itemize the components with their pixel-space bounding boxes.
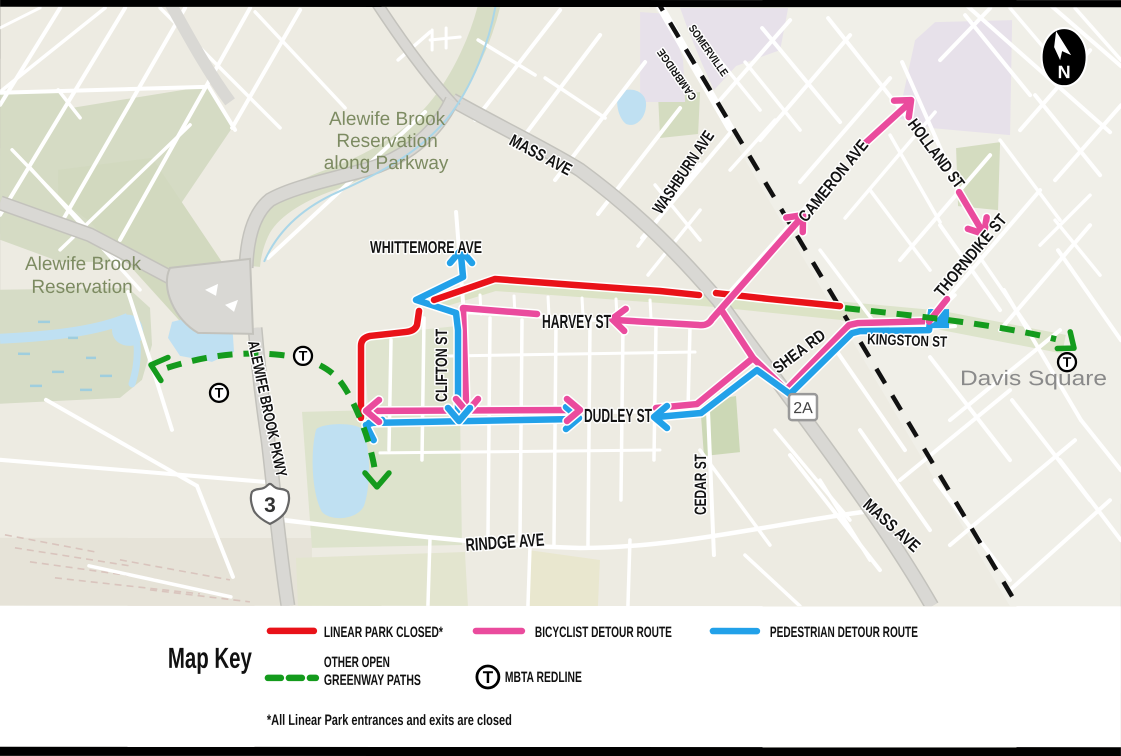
svg-text:Reservation: Reservation bbox=[31, 277, 132, 298]
svg-text:Reservation: Reservation bbox=[336, 131, 437, 152]
svg-text:*All Linear Park entrances and: *All Linear Park entrances and exits are… bbox=[267, 712, 512, 729]
svg-text:CLIFTON ST: CLIFTON ST bbox=[433, 329, 451, 402]
svg-text:T: T bbox=[1063, 354, 1072, 370]
svg-text:PEDESTRIAN DETOUR ROUTE: PEDESTRIAN DETOUR ROUTE bbox=[770, 624, 918, 641]
svg-text:GREENWAY PATHS: GREENWAY PATHS bbox=[324, 672, 421, 689]
svg-text:MBTA REDLINE: MBTA REDLINE bbox=[505, 669, 582, 686]
svg-text:DUDLEY ST: DUDLEY ST bbox=[584, 406, 652, 427]
svg-text:KINGSTON ST: KINGSTON ST bbox=[867, 331, 948, 351]
svg-text:LINEAR PARK CLOSED*: LINEAR PARK CLOSED* bbox=[324, 624, 443, 641]
svg-text:WHITTEMORE AVE: WHITTEMORE AVE bbox=[370, 238, 482, 257]
svg-text:N: N bbox=[1058, 62, 1071, 82]
svg-text:Map Key: Map Key bbox=[168, 643, 252, 675]
svg-text:T: T bbox=[483, 668, 494, 687]
svg-text:3: 3 bbox=[264, 494, 276, 517]
svg-text:Alewife Brook: Alewife Brook bbox=[25, 254, 142, 275]
svg-text:Alewife Brook: Alewife Brook bbox=[329, 109, 446, 130]
svg-text:HARVEY ST: HARVEY ST bbox=[542, 312, 611, 333]
svg-text:T: T bbox=[299, 348, 308, 364]
svg-text:BICYCLIST DETOUR ROUTE: BICYCLIST DETOUR ROUTE bbox=[535, 624, 672, 641]
svg-text:CEDAR ST: CEDAR ST bbox=[692, 454, 710, 515]
svg-text:along Parkway: along Parkway bbox=[324, 153, 449, 174]
svg-text:2A: 2A bbox=[793, 400, 813, 417]
svg-text:OTHER OPEN: OTHER OPEN bbox=[324, 654, 390, 671]
svg-text:T: T bbox=[215, 385, 224, 401]
svg-text:Davis Square: Davis Square bbox=[960, 367, 1107, 390]
